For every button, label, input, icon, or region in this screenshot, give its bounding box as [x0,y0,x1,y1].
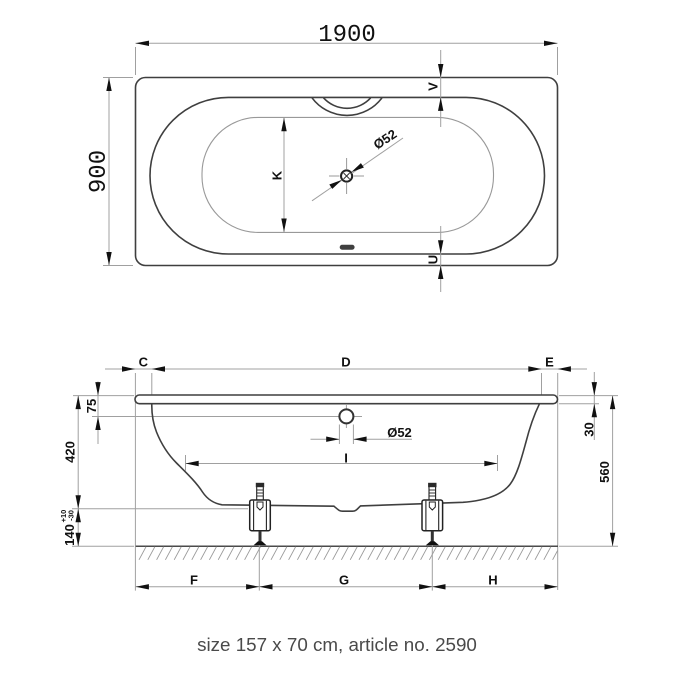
svg-text:900: 900 [86,150,113,193]
svg-text:size 157 x 70 cm, article no.: size 157 x 70 cm, article no. 2590 [197,634,477,655]
svg-text:F: F [190,572,198,587]
svg-text:420: 420 [63,441,78,463]
svg-text:V: V [426,82,441,91]
svg-text:H: H [488,572,497,587]
svg-text:30: 30 [582,422,597,436]
svg-text:-30: -30 [67,510,76,521]
svg-text:560: 560 [597,461,612,483]
svg-text:Ø52: Ø52 [387,425,412,440]
svg-text:E: E [545,355,554,370]
svg-text:1900: 1900 [318,22,376,49]
svg-text:140: 140 [62,524,77,546]
svg-text:G: G [339,572,349,587]
svg-text:K: K [270,170,285,180]
svg-text:I: I [344,450,348,465]
svg-text:U: U [426,255,441,264]
svg-text:D: D [341,354,350,369]
svg-text:75: 75 [84,399,99,413]
svg-text:C: C [139,355,149,370]
